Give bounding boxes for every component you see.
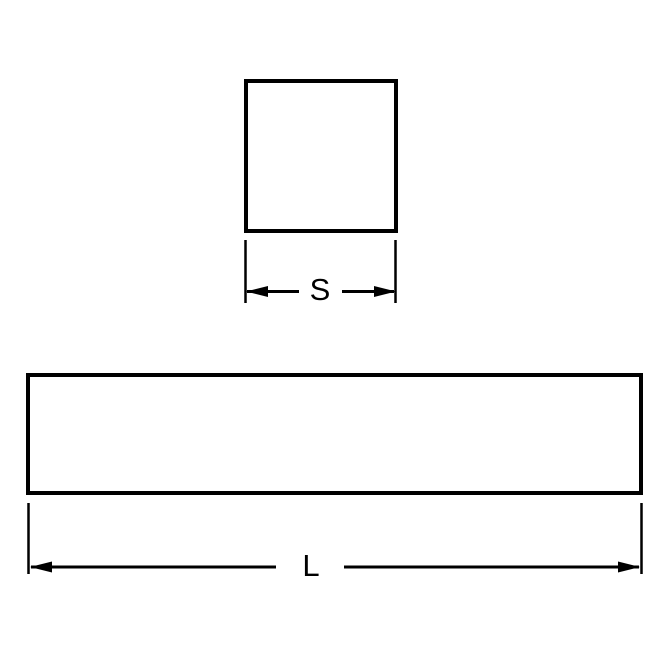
square-width-label: S — [310, 272, 331, 307]
technical-drawing-canvas: S L — [0, 0, 670, 670]
bar-length-label: L — [302, 548, 319, 583]
dimension-diagram: S L — [0, 0, 670, 670]
square-cross-section-outline — [246, 81, 396, 231]
l-arrow-right-icon — [618, 562, 640, 573]
l-arrow-left-icon — [30, 562, 52, 573]
s-arrow-left-icon — [246, 286, 268, 297]
bar-side-view-outline — [28, 375, 641, 493]
s-arrow-right-icon — [374, 286, 396, 297]
